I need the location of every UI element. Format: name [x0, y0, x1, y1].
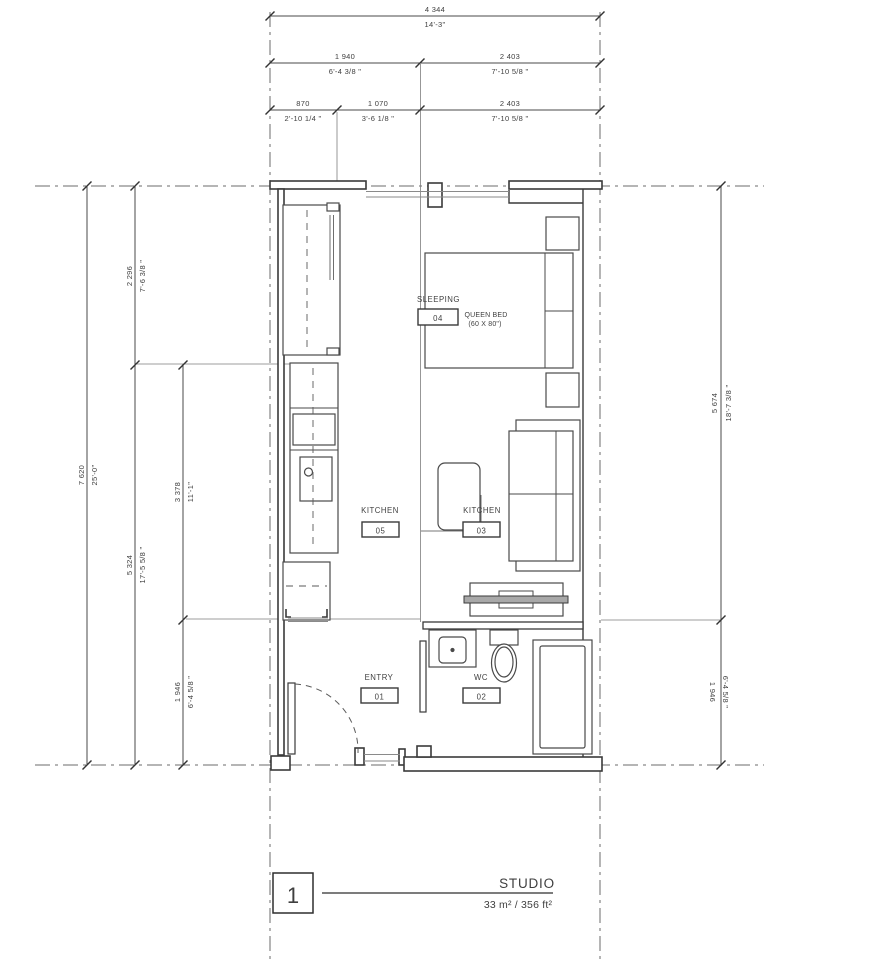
kitchen-sink: [300, 457, 332, 501]
dim-right-lower-mm: 1 946: [708, 682, 717, 702]
title-name: STUDIO: [499, 876, 555, 891]
room-label-entry: ENTRY: [365, 673, 394, 682]
dim-left-bottom-ft: 6'-4 5/8 ": [186, 676, 195, 709]
bed-note-line2: (60 X 80"): [468, 321, 501, 328]
closet-notch-top: [327, 203, 339, 211]
dim-left-upper-ft: 7'-6 3/8 ": [138, 260, 147, 293]
closet: [283, 205, 340, 355]
dim-top-r2b-mm: 2 403: [500, 52, 520, 61]
dim-top-r3b-ft: 3'-6 1/8 ": [362, 114, 395, 123]
room-tag-entry: 01: [375, 693, 385, 702]
toilet-tank: [490, 630, 518, 645]
wall-top-left: [270, 181, 366, 189]
dim-top-r3a-ft: 2'-10 1/4 ": [285, 114, 322, 123]
room-label-living: KITCHEN: [463, 506, 501, 515]
window-bottom: [364, 755, 400, 762]
floor-plan-sheet: 4 344 14'-3" 1 940 6'-4 3/8 " 2 403 7'-1…: [0, 0, 886, 965]
wall-bottom-notch: [417, 746, 431, 757]
dim-top-r3b-mm: 1 070: [368, 99, 388, 108]
dim-left-upper-mm: 2 296: [125, 266, 134, 286]
dimension-ticks: [83, 12, 726, 770]
dim-right-upper-mm: 5 674: [710, 393, 719, 413]
centerlines: [35, 12, 764, 962]
floor-plan-drawing: 4 344 14'-3" 1 940 6'-4 3/8 " 2 403 7'-1…: [0, 0, 886, 965]
dim-top-r3c-mm: 2 403: [500, 99, 520, 108]
title-area: 33 m² / 356 ft²: [484, 899, 553, 911]
entry-door-leaf: [288, 683, 295, 754]
dim-right-lower-ft: 6'-4 5/8 ": [721, 676, 730, 709]
dimension-lines: [87, 16, 721, 765]
kitchen-run: [283, 203, 340, 620]
room-label-wc: WC: [474, 673, 488, 682]
title-number: 1: [287, 883, 299, 908]
dim-top-r2b-ft: 7'-10 5/8 ": [492, 67, 529, 76]
nightstand-bottom: [546, 373, 579, 407]
bathroom-pocket-door: [420, 641, 426, 712]
armchair: [438, 463, 480, 530]
entry-door-jamb: [355, 748, 364, 765]
dim-left-lower-ft: 17'-5 5/8 ": [138, 546, 147, 583]
window-mullion: [428, 183, 442, 207]
wall-corner-bottom-left: [271, 756, 290, 770]
room-tag-sleeping: 04: [433, 314, 443, 323]
room-tag-kitchen: 05: [376, 527, 386, 536]
dim-right-upper-ft: 18'-7 3/8 ": [724, 384, 733, 421]
entry-door-swing-arc: [295, 684, 358, 753]
dim-top-overall-mm: 4 344: [425, 5, 445, 14]
dim-top-r3a-mm: 870: [296, 99, 309, 108]
fridge-unit: [283, 562, 330, 620]
dim-left-bottom-mm: 1 946: [173, 682, 182, 702]
bed-note-line1: QUEEN BED: [464, 312, 507, 319]
dim-left-mid-mm: 3 378: [173, 482, 182, 502]
dim-top-r2a-ft: 6'-4 3/8 ": [329, 67, 362, 76]
room-tag-wc: 02: [477, 693, 487, 702]
dim-left-mid-ft: 11'-1": [186, 482, 195, 502]
dim-left-overall-mm: 7 620: [77, 465, 86, 485]
tv-screen: [464, 596, 568, 603]
dim-top-r3c-ft: 7'-10 5/8 ": [492, 114, 529, 123]
sink-drain: [451, 649, 454, 652]
shower-tray: [540, 646, 585, 748]
dim-top-overall-ft: 14'-3": [425, 20, 446, 29]
dim-left-overall-ft: 25'-0": [90, 465, 99, 486]
room-label-kitchen: KITCHEN: [361, 506, 399, 515]
wall-top-right: [509, 181, 602, 189]
closet-notch-bottom: [327, 348, 339, 355]
nightstand-top: [546, 217, 579, 250]
cooktop: [293, 414, 335, 445]
room-label-sleeping: SLEEPING: [417, 295, 460, 304]
sink-faucet: [305, 468, 313, 476]
dim-top-r2a-mm: 1 940: [335, 52, 355, 61]
room-tag-living: 03: [477, 527, 487, 536]
toilet-bowl-inner: [495, 647, 513, 677]
bathroom-fixtures: [429, 630, 592, 754]
dim-left-lower-mm: 5 324: [125, 555, 134, 575]
wall-bottom: [404, 757, 602, 771]
bulkhead-top-right: [509, 190, 583, 203]
sofa-cushions: [509, 431, 573, 561]
wall-bathroom-partition: [423, 622, 583, 629]
